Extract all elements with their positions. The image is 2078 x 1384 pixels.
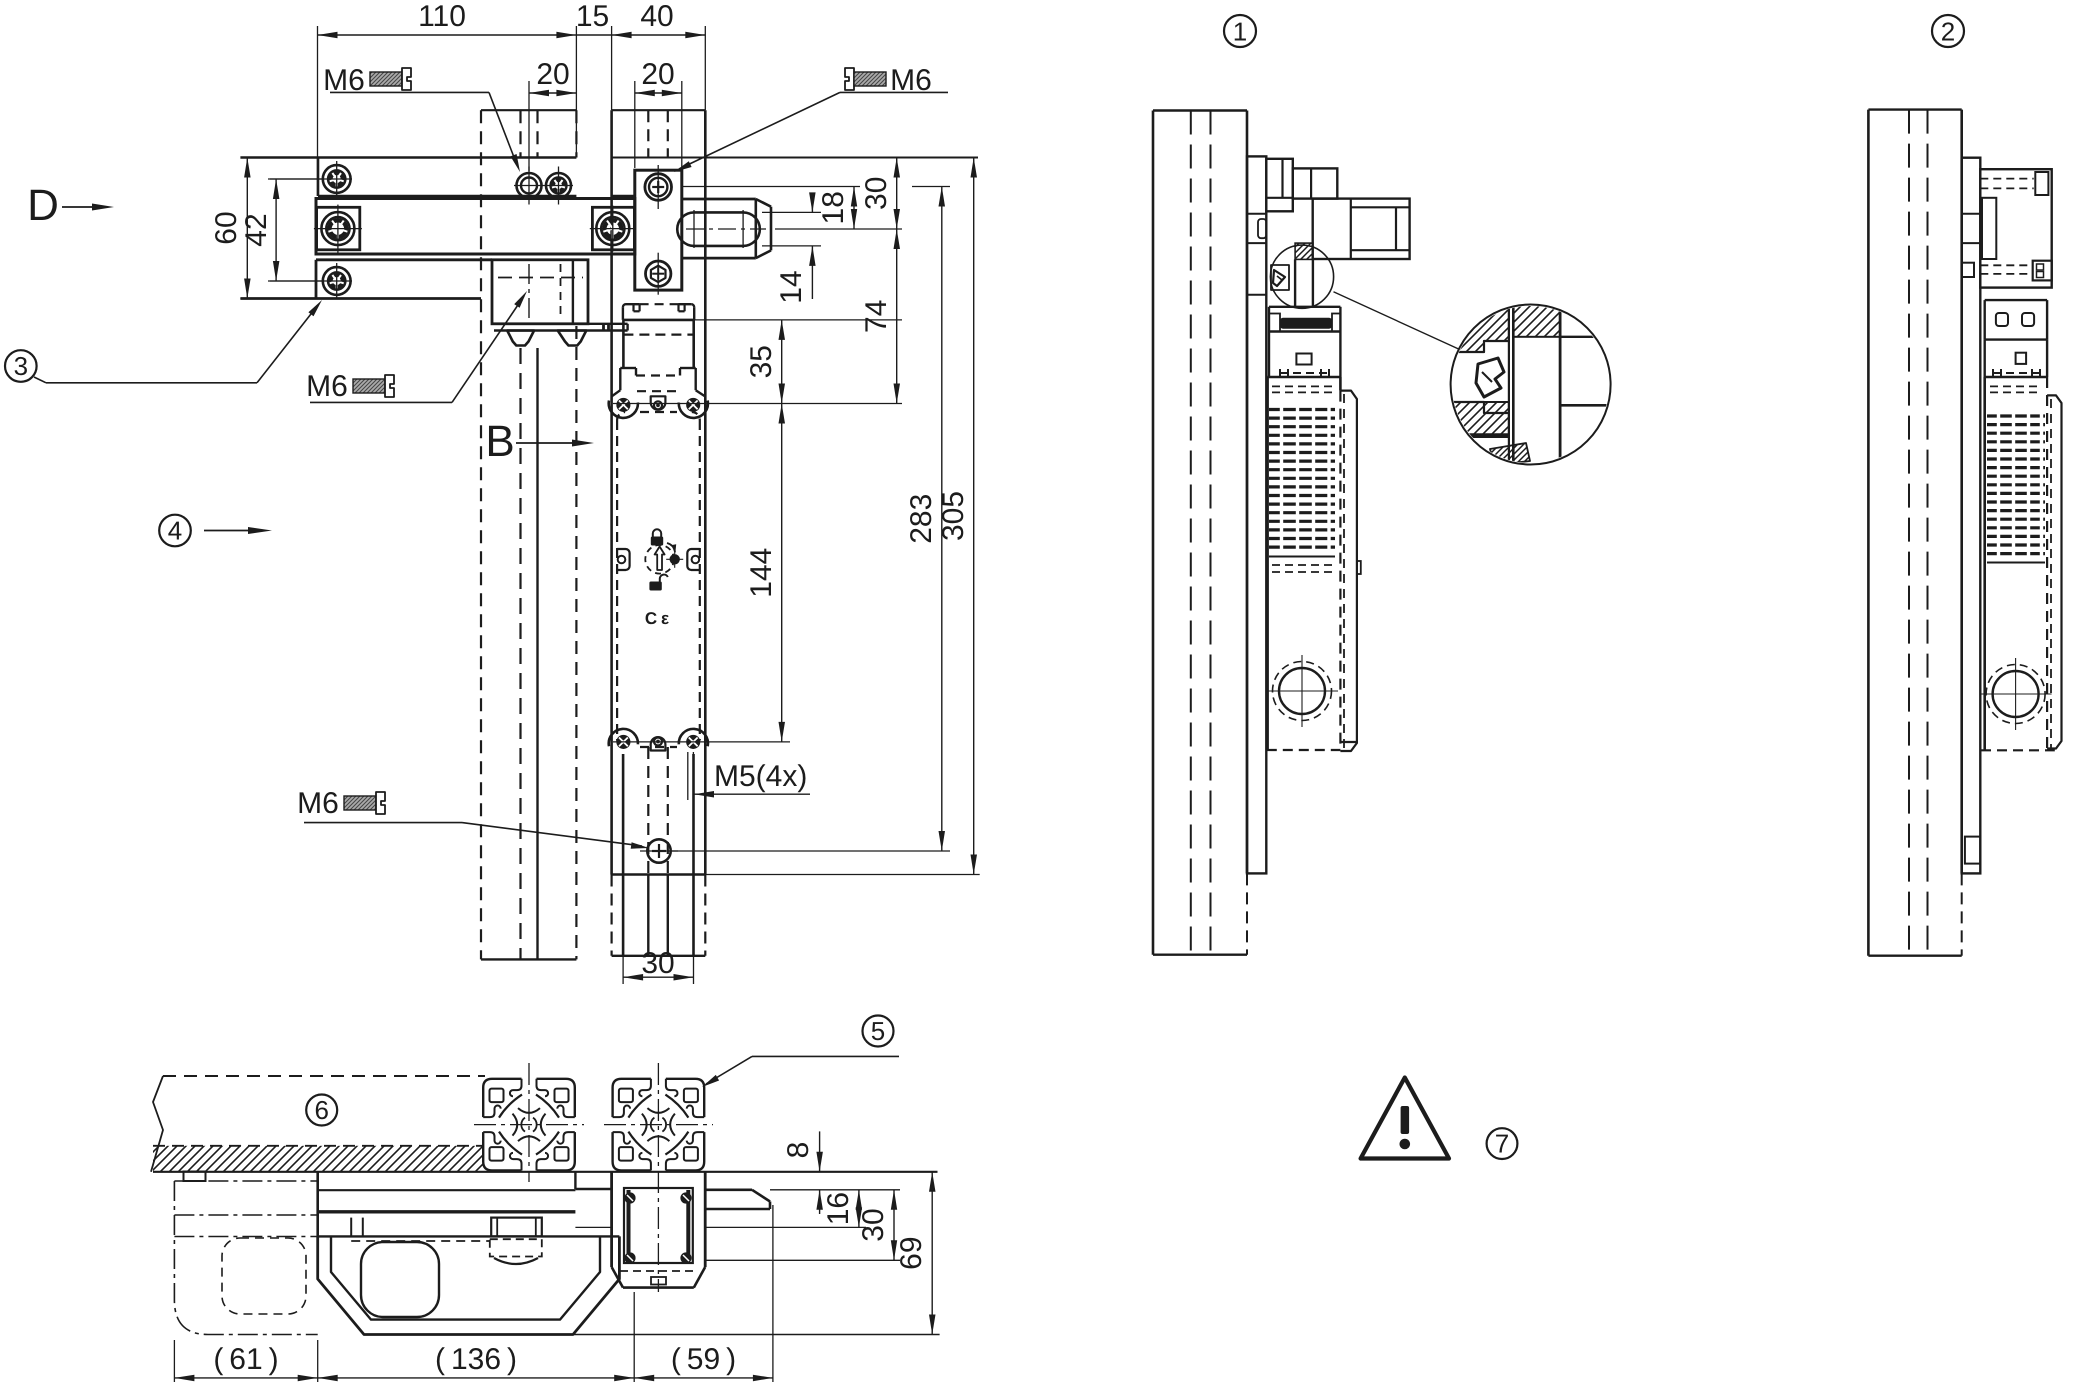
svg-text:( 59 ): ( 59 ) [671,1343,736,1376]
svg-text:60: 60 [210,211,243,244]
svg-text:2: 2 [1941,17,1955,47]
svg-text:30: 30 [857,1208,890,1241]
svg-text:6: 6 [314,1095,328,1125]
svg-text:144: 144 [745,548,778,598]
svg-text:74: 74 [860,300,893,333]
svg-text:30: 30 [641,947,674,980]
svg-text:18: 18 [817,191,850,224]
svg-text:30: 30 [860,177,893,210]
svg-text:M5(4x): M5(4x) [714,760,807,793]
svg-text:283: 283 [905,494,938,544]
svg-text:M6: M6 [306,370,348,403]
svg-text:15: 15 [576,0,609,33]
svg-text:ε: ε [661,609,669,628]
svg-text:42: 42 [240,213,273,246]
svg-text:7: 7 [1495,1129,1509,1159]
svg-text:1: 1 [1233,17,1247,47]
svg-text:3: 3 [14,351,28,381]
svg-text:20: 20 [641,58,674,91]
svg-text:16: 16 [822,1192,855,1225]
svg-text:C: C [645,609,657,628]
svg-text:( 136 ): ( 136 ) [435,1343,517,1376]
svg-text:8: 8 [782,1142,815,1159]
svg-text:305: 305 [937,491,970,541]
svg-text:35: 35 [745,345,778,378]
svg-text:14: 14 [775,270,808,303]
svg-text:4: 4 [168,516,182,546]
svg-text:110: 110 [418,0,466,33]
svg-text:40: 40 [640,0,673,33]
svg-text:M6: M6 [297,787,339,820]
svg-text:5: 5 [871,1016,885,1046]
svg-text:20: 20 [536,58,569,91]
svg-text:( 61 ): ( 61 ) [213,1343,278,1376]
svg-text:D: D [27,181,59,230]
svg-text:69: 69 [895,1236,928,1269]
svg-text:B: B [485,417,514,466]
